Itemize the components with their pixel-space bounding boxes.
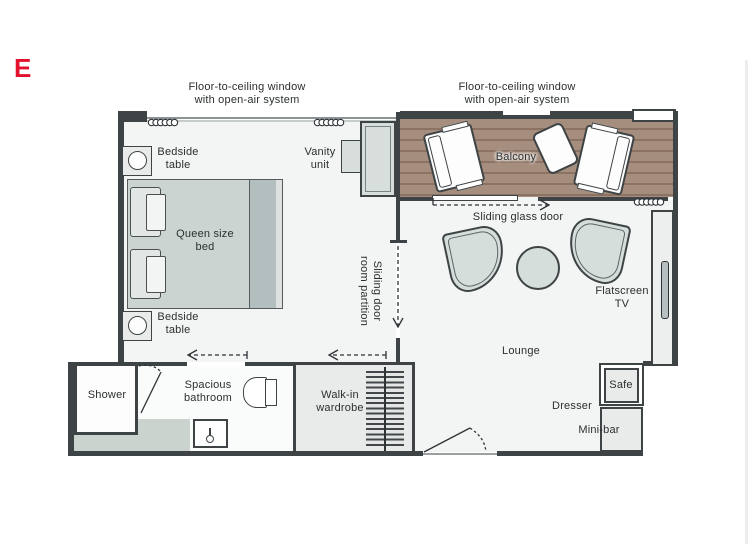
- toilet-bowl: [243, 377, 267, 408]
- window-label-left-line1: Floor-to-ceiling window: [188, 81, 305, 93]
- bathroom-top-wall-b: [245, 362, 295, 366]
- partition-wall-upper: [396, 197, 400, 240]
- partition-line2: room partition: [358, 256, 370, 326]
- bedroom-window-track: [147, 117, 396, 119]
- bedside-bottom-line1: Bedside: [157, 311, 198, 323]
- sliding-glass-door-label: Sliding glass door: [473, 211, 563, 224]
- lounge-label: Lounge: [502, 345, 540, 358]
- bedroom-window-track2: [147, 120, 396, 122]
- vanity-unit: [360, 121, 396, 197]
- queen-bed-label: Queen size bed: [176, 228, 234, 253]
- window-label-right-line2: with open-air system: [465, 94, 570, 106]
- bathroom-line1: Spacious: [185, 379, 232, 391]
- wardrobe-rail: [384, 367, 386, 451]
- partition-wall-lower: [396, 338, 400, 364]
- bathroom-label: Spacious bathroom: [184, 379, 232, 404]
- tv-line1: Flatscreen: [595, 285, 648, 297]
- bedside-table-bottom-label: Bedside table: [157, 311, 198, 336]
- bedside-lamp-top: [128, 151, 147, 170]
- wardrobe-line1: Walk-in: [321, 389, 359, 401]
- room-partition-label: Sliding door room partition: [357, 256, 383, 326]
- wardrobe-line2: wardrobe: [316, 402, 363, 414]
- bedside-top-line2: table: [166, 159, 191, 171]
- window-label-left: Floor-to-ceiling window with open-air sy…: [188, 81, 305, 106]
- lounge-round-table: [516, 246, 560, 290]
- partition-end-cap: [390, 240, 407, 243]
- sink-faucet: [206, 435, 214, 443]
- safe-label: Safe: [609, 379, 632, 392]
- brand-logo-e: E: [14, 55, 31, 81]
- bedside-table-top-label: Bedside table: [157, 146, 198, 171]
- vanity-unit-label: Vanity unit: [305, 146, 336, 171]
- bathroom-line2: bathroom: [184, 392, 232, 404]
- vanity-inner-line: [365, 126, 391, 192]
- floorplan-canvas: E: [0, 0, 748, 544]
- wardrobe-label: Walk-in wardrobe: [316, 389, 363, 414]
- sliding-glass-door-panel: [432, 195, 518, 201]
- bedside-lamp-bottom: [128, 316, 147, 335]
- balcony-label: Balcony: [496, 151, 537, 164]
- bed-pillow-1-inner: [146, 194, 166, 231]
- queen-line1: Queen size: [176, 228, 234, 240]
- vanity-line1: Vanity: [305, 146, 336, 158]
- balcony-rail-opening: [503, 111, 550, 115]
- minibar-label: Mini-bar: [578, 424, 619, 437]
- sliding-glass-door-gap: [518, 197, 538, 201]
- window-label-right: Floor-to-ceiling window with open-air sy…: [458, 81, 575, 106]
- bed-pillow-2-inner: [146, 256, 166, 293]
- entry-threshold: [423, 453, 497, 455]
- bedside-top-line1: Bedside: [157, 146, 198, 158]
- bedside-bottom-line2: table: [166, 324, 191, 336]
- tv-line2: TV: [615, 298, 629, 310]
- balcony-corner-panel: [632, 109, 676, 122]
- bed-foot-runner: [249, 180, 276, 308]
- partition-line1: Sliding door: [371, 261, 383, 322]
- flatscreen-tv: [661, 261, 669, 319]
- vanity-right-wall: [396, 112, 400, 197]
- queen-line2: bed: [196, 241, 215, 253]
- bed-frame-edge: [276, 180, 282, 308]
- flatscreen-tv-label: Flatscreen TV: [595, 285, 648, 310]
- vanity-stool: [341, 140, 362, 173]
- dresser-label: Dresser: [552, 400, 592, 413]
- window-label-left-line2: with open-air system: [195, 94, 300, 106]
- window-label-right-line1: Floor-to-ceiling window: [458, 81, 575, 93]
- topleft-wall-stub: [118, 111, 147, 122]
- vanity-line2: unit: [311, 159, 330, 171]
- shower-label: Shower: [88, 389, 127, 402]
- toilet-tank: [265, 379, 277, 406]
